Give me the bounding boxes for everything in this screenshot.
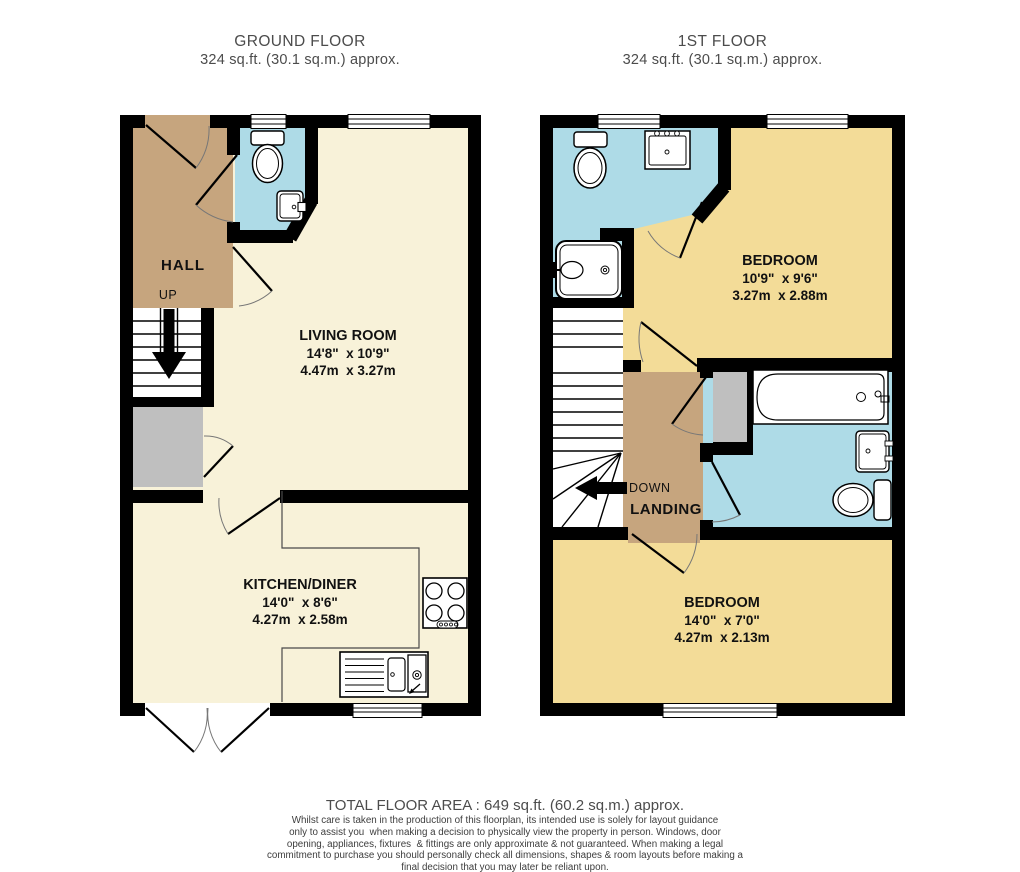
bedroom1-label: BEDROOM 10'9" x 9'6" 3.27m x 2.88m bbox=[680, 253, 880, 304]
window bbox=[353, 704, 422, 718]
toilet-icon bbox=[574, 132, 607, 188]
disclaimer-line: Whilst care is taken in the production o… bbox=[0, 815, 1010, 827]
disclaimer-line: opening, appliances, fixtures & fittings… bbox=[0, 839, 1010, 851]
room-dims-metric: 4.27m x 2.13m bbox=[622, 629, 822, 646]
room-dims-metric: 4.47m x 3.27m bbox=[248, 362, 448, 379]
room-dims-metric: 4.27m x 2.58m bbox=[200, 611, 400, 628]
basin-icon bbox=[645, 131, 690, 169]
first-floor-title: 1ST FLOOR bbox=[540, 32, 905, 51]
landing-cupboard bbox=[713, 372, 747, 442]
shower-icon bbox=[553, 241, 622, 299]
toilet-icon bbox=[833, 480, 891, 520]
disclaimer: Whilst care is taken in the production o… bbox=[0, 815, 1010, 872]
room-dims-imperial: 10'9" x 9'6" bbox=[680, 270, 880, 287]
room-name: BEDROOM bbox=[622, 595, 822, 612]
bedroom2-label: BEDROOM 14'0" x 7'0" 4.27m x 2.13m bbox=[622, 595, 822, 646]
ground-floor-area: 324 sq.ft. (30.1 sq.m.) approx. bbox=[120, 51, 480, 70]
kitchen-diner-label: KITCHEN/DINER 14'0" x 8'6" 4.27m x 2.58m bbox=[200, 577, 400, 628]
landing-label: LANDING bbox=[606, 501, 726, 518]
window bbox=[348, 115, 430, 129]
floorplan-graphics bbox=[0, 0, 1020, 872]
landing-down-label: DOWN bbox=[629, 481, 689, 495]
hall-up-label: UP bbox=[133, 288, 203, 302]
first-floor-area: 324 sq.ft. (30.1 sq.m.) approx. bbox=[540, 51, 905, 70]
room-dims-imperial: 14'0" x 7'0" bbox=[622, 612, 822, 629]
basin-icon bbox=[277, 191, 306, 221]
understairs-cupboard bbox=[133, 407, 203, 487]
window bbox=[663, 704, 777, 718]
hob-icon bbox=[423, 578, 467, 628]
room-dims-imperial: 14'0" x 8'6" bbox=[200, 594, 400, 611]
window bbox=[767, 115, 848, 129]
disclaimer-line: only to assist you when making a decisio… bbox=[0, 827, 1010, 839]
front-door-opening bbox=[145, 115, 210, 128]
window bbox=[251, 115, 286, 129]
room-name: KITCHEN/DINER bbox=[200, 577, 400, 594]
kitchen-sink-icon bbox=[340, 652, 428, 697]
basin-icon bbox=[856, 431, 893, 472]
ground-floor-plan bbox=[120, 115, 481, 753]
toilet-icon bbox=[251, 131, 284, 183]
room-dims-metric: 3.27m x 2.88m bbox=[680, 287, 880, 304]
ground-floor-header: GROUND FLOOR 324 sq.ft. (30.1 sq.m.) app… bbox=[120, 32, 480, 70]
floorplan-image: GROUND FLOOR 324 sq.ft. (30.1 sq.m.) app… bbox=[0, 0, 1020, 872]
first-floor-header: 1ST FLOOR 324 sq.ft. (30.1 sq.m.) approx… bbox=[540, 32, 905, 70]
room-name: BEDROOM bbox=[680, 253, 880, 270]
hall-label: HALL bbox=[133, 257, 233, 274]
living-room-label: LIVING ROOM 14'8" x 10'9" 4.47m x 3.27m bbox=[248, 328, 448, 379]
disclaimer-line: commitment to purchase you should person… bbox=[0, 850, 1010, 862]
room-name: LIVING ROOM bbox=[248, 328, 448, 345]
bath-icon bbox=[753, 370, 889, 424]
room-dims-imperial: 14'8" x 10'9" bbox=[248, 345, 448, 362]
disclaimer-line: final decision that you may later be rel… bbox=[0, 862, 1010, 872]
window bbox=[598, 115, 660, 129]
landing-door-threshold bbox=[628, 527, 700, 543]
ground-floor-title: GROUND FLOOR bbox=[120, 32, 480, 51]
total-floor-area: TOTAL FLOOR AREA : 649 sq.ft. (60.2 sq.m… bbox=[0, 797, 1010, 814]
